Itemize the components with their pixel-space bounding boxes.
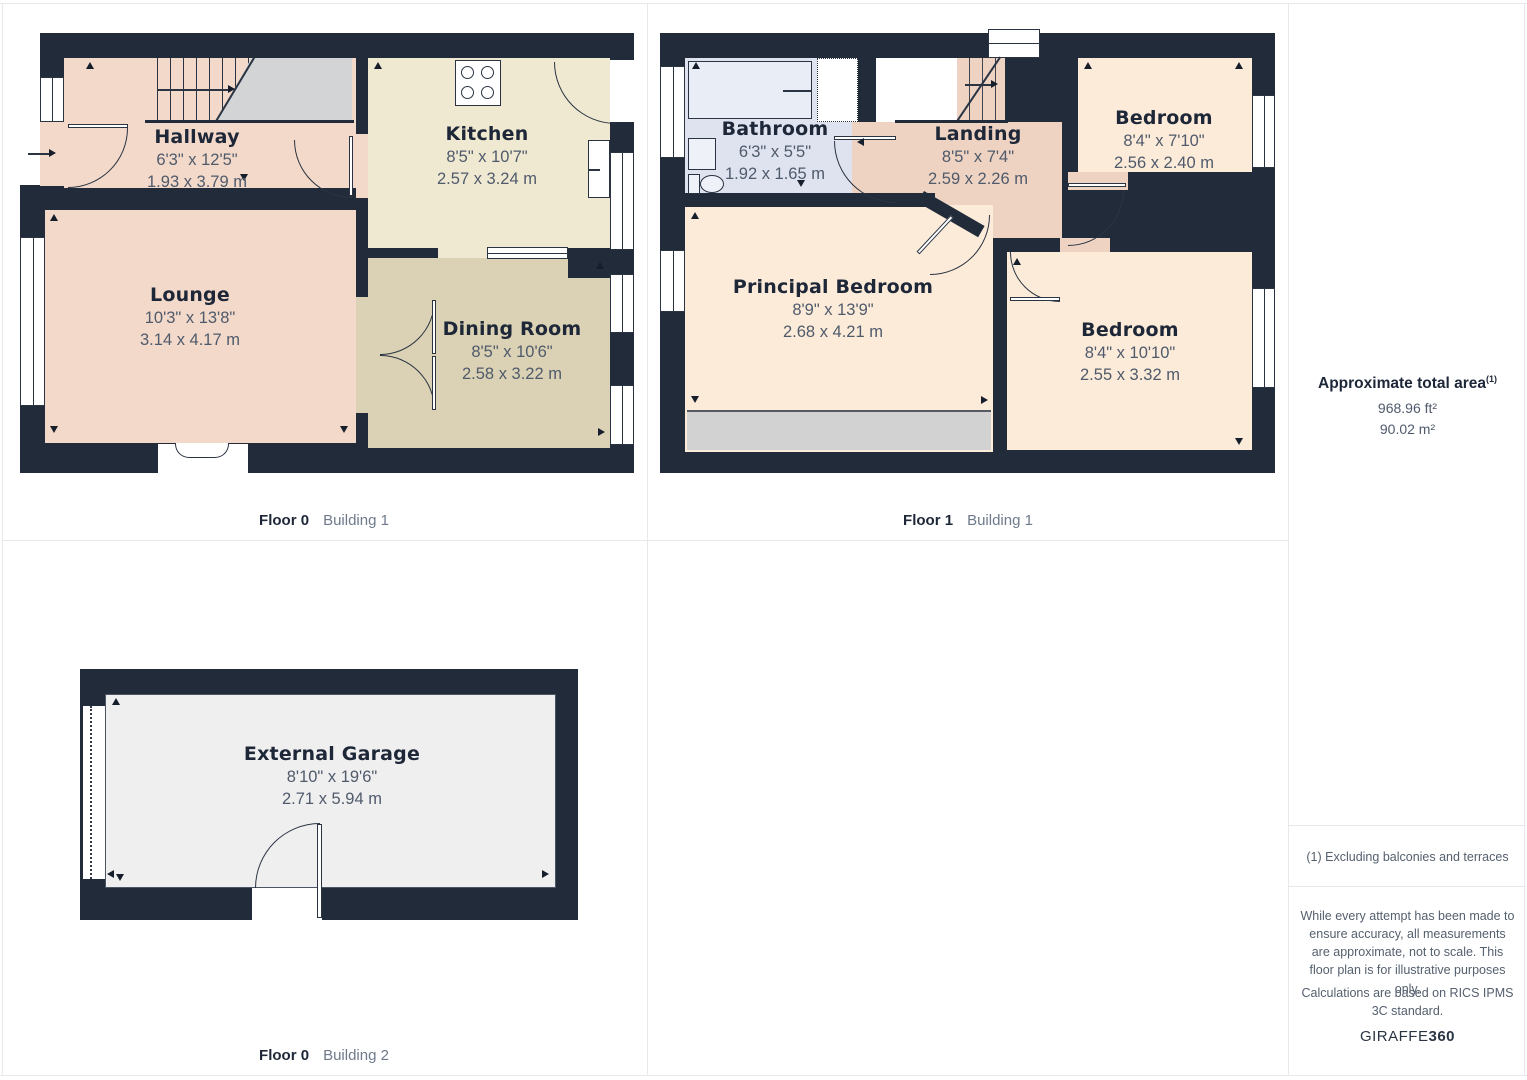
bedroom1-doorway bbox=[1068, 172, 1128, 190]
total-area-title: Approximate total area(1) bbox=[1288, 374, 1527, 393]
toilet-bowl bbox=[700, 175, 724, 193]
stair-direction-line bbox=[158, 89, 230, 91]
dim-tick bbox=[116, 874, 124, 881]
window bbox=[660, 66, 685, 158]
total-area-m: 90.02 m² bbox=[1288, 421, 1527, 437]
total-area-ft: 968.96 ft² bbox=[1288, 400, 1527, 416]
garage-side-door-opening bbox=[252, 888, 322, 920]
entry-arrow-head bbox=[49, 149, 56, 157]
staircase-treads bbox=[957, 58, 1005, 122]
wall bbox=[993, 247, 1007, 452]
stair-direction-line bbox=[965, 84, 993, 86]
bathroom-sink bbox=[688, 138, 716, 170]
kitchen-sink-tap bbox=[588, 169, 600, 171]
dim-tick bbox=[240, 174, 248, 181]
lounge-dining-doorway bbox=[356, 297, 368, 413]
burner-icon bbox=[461, 66, 474, 79]
dining-floor bbox=[368, 258, 610, 448]
dim-tick bbox=[596, 262, 604, 269]
lounge-floor bbox=[45, 210, 356, 443]
window bbox=[20, 237, 45, 406]
dim-tick bbox=[691, 396, 699, 403]
bathroom-door-leaf bbox=[834, 136, 896, 140]
hall-kitchen-doorway bbox=[356, 134, 368, 198]
toilet bbox=[688, 174, 700, 194]
stair-direction-arrow bbox=[991, 80, 998, 88]
window bbox=[610, 152, 634, 250]
dim-tick bbox=[542, 870, 549, 878]
entry-arrow-line bbox=[28, 153, 50, 155]
panel-floor0-building1: Hallway 6'3" x 12'5"1.93 x 3.79 m Kitche… bbox=[0, 0, 647, 540]
window bbox=[660, 250, 685, 312]
bedroom1-door-leaf bbox=[1068, 183, 1126, 187]
footnote-marker: (1) bbox=[1486, 374, 1497, 384]
dim-tick bbox=[857, 138, 864, 146]
floor-label: Floor 0Building 1 bbox=[259, 512, 389, 529]
window bbox=[1252, 288, 1275, 388]
sidebar-divider-1 bbox=[1289, 825, 1526, 826]
garage-door-leaf bbox=[317, 824, 322, 918]
dim-tick bbox=[981, 396, 988, 404]
panel-floor1-building1: Bathroom 6'3" x 5'5"1.92 x 1.65 m Landin… bbox=[647, 0, 1288, 540]
divider-vertical-2 bbox=[1288, 3, 1289, 1076]
dim-tick bbox=[112, 698, 120, 705]
burner-icon bbox=[461, 86, 474, 99]
dim-tick bbox=[50, 214, 58, 221]
french-door-leaf-top bbox=[432, 300, 436, 354]
sidebar-divider-2 bbox=[1289, 886, 1526, 887]
serving-hatch bbox=[487, 247, 568, 259]
burner-icon bbox=[481, 66, 494, 79]
bedroom1-floor bbox=[1078, 58, 1252, 172]
window bbox=[40, 77, 64, 122]
floorplan-page: { "panels": [ { "floor_label": "Floor 0"… bbox=[0, 0, 1527, 1080]
lounge-bay-arch bbox=[175, 443, 229, 458]
dim-tick bbox=[340, 426, 348, 433]
garage-door-opening bbox=[83, 706, 105, 879]
standard-text: Calculations are based on RICS IPMS 3C s… bbox=[1300, 984, 1515, 1020]
stairwell-void bbox=[876, 58, 957, 122]
window bbox=[1252, 95, 1275, 168]
dim-tick bbox=[1235, 62, 1243, 69]
dim-tick bbox=[86, 62, 94, 69]
garage-door-track bbox=[90, 706, 92, 879]
window bbox=[610, 274, 634, 333]
eaves-gray-strip bbox=[687, 410, 991, 450]
floor-label: Floor 0Building 2 bbox=[259, 1047, 389, 1064]
french-door-leaf-bottom bbox=[432, 356, 436, 410]
floor-label: Floor 1Building 1 bbox=[903, 512, 1033, 529]
garage-floor bbox=[105, 694, 556, 888]
dim-tick bbox=[691, 212, 699, 219]
dim-tick bbox=[797, 180, 805, 187]
wall bbox=[685, 193, 935, 207]
dim-tick bbox=[598, 428, 605, 436]
bedroom2-door-leaf bbox=[1010, 297, 1060, 301]
dim-tick bbox=[1235, 438, 1243, 445]
cupboard bbox=[817, 58, 858, 122]
window bbox=[610, 385, 634, 445]
burner-icon bbox=[481, 86, 494, 99]
border-right bbox=[1524, 3, 1525, 1076]
footnote-text: (1) Excluding balconies and terraces bbox=[1300, 848, 1515, 866]
bathtub-tap bbox=[783, 90, 811, 92]
dim-tick bbox=[50, 426, 58, 433]
dim-tick bbox=[374, 62, 382, 69]
dim-tick bbox=[107, 870, 114, 878]
dim-tick bbox=[1084, 62, 1092, 69]
wall bbox=[1007, 238, 1252, 252]
stair-rail bbox=[145, 120, 354, 123]
dim-tick bbox=[1013, 258, 1021, 265]
giraffe360-logo: GIRAFFE360 bbox=[1288, 1028, 1527, 1045]
stove bbox=[455, 60, 501, 106]
stair-direction-arrow bbox=[228, 85, 235, 93]
stair-rail bbox=[895, 120, 1008, 123]
kitchen-dining-opening bbox=[438, 248, 487, 258]
dim-tick bbox=[692, 62, 700, 69]
chimney-line bbox=[989, 43, 1039, 44]
panel-floor0-building2: External Garage 8'10" x 19'6"2.71 x 5.94… bbox=[0, 540, 647, 1080]
